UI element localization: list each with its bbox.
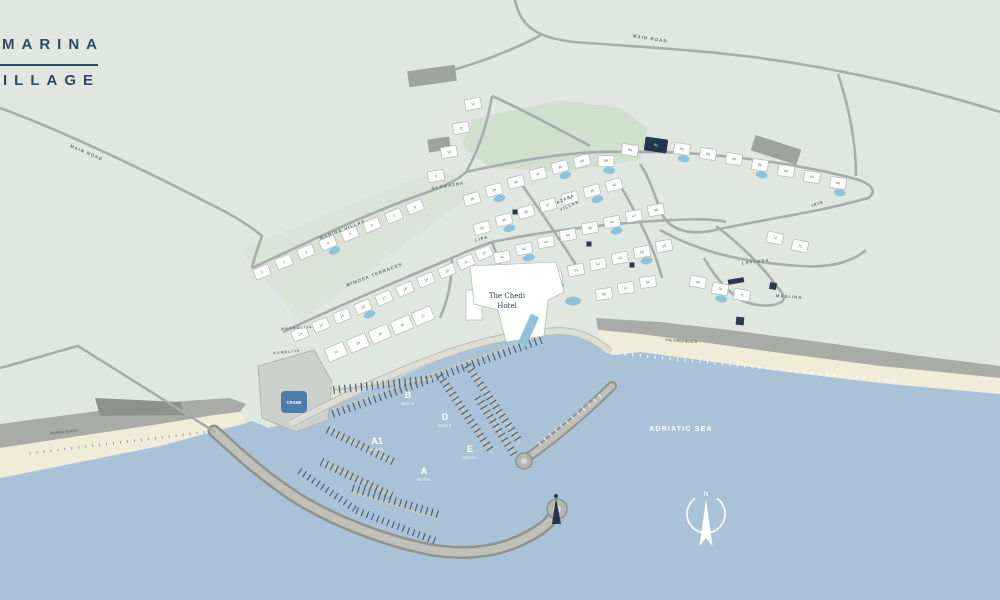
villa-53: 53 (611, 251, 629, 265)
villa-45: 45 (581, 221, 599, 235)
svg-text:58: 58 (646, 280, 650, 285)
svg-text:B: B (405, 390, 412, 400)
svg-text:67: 67 (810, 175, 814, 180)
crane-label: CRANE (287, 400, 302, 405)
svg-text:BERTH: BERTH (401, 402, 414, 406)
villa-66: 66 (777, 164, 794, 177)
svg-text:BERTH: BERTH (463, 456, 476, 460)
svg-text:A: A (421, 466, 428, 476)
villa-9: 9 (427, 169, 445, 183)
villa-71: 71 (733, 288, 751, 302)
svg-text:56: 56 (602, 292, 606, 297)
villa-10: 10 (440, 145, 458, 159)
crane-badge: CRANE (281, 391, 307, 413)
villa-44: 44 (559, 228, 577, 242)
svg-text:64: 64 (732, 157, 736, 162)
hotel-pool (565, 297, 581, 306)
villa-63: 63 (699, 147, 716, 160)
svg-text:61: 61 (654, 143, 658, 148)
villa-12: 12 (464, 97, 482, 111)
villa-11: 11 (452, 121, 470, 135)
label-adriatic-sea: ADRIATIC SEA (649, 426, 713, 433)
svg-text:57: 57 (624, 286, 628, 291)
villa-52: 52 (589, 257, 607, 271)
villa-41: 41 (493, 250, 511, 264)
berth-label-A1: A1BERTH (370, 436, 383, 452)
svg-text:62: 62 (680, 147, 684, 152)
villa-47: 47 (625, 209, 643, 223)
svg-text:D: D (442, 412, 449, 422)
svg-text:BERTH: BERTH (438, 424, 451, 428)
svg-text:68: 68 (836, 181, 840, 186)
compass-north-label: N (703, 491, 708, 498)
svg-text:E: E (467, 444, 473, 454)
logo-line1: MARINA (2, 36, 104, 53)
logo-line2: VILLAGE (0, 72, 100, 89)
hotel-label-line2: Hotel (497, 302, 517, 310)
villa-51: 51 (567, 263, 585, 277)
svg-text:65: 65 (758, 163, 762, 168)
svg-text:A1: A1 (371, 436, 383, 446)
svg-text:60: 60 (628, 148, 632, 153)
svg-text:59: 59 (604, 159, 608, 163)
marina-village-map-page: MARINA VILLAGE (0, 0, 1000, 600)
villa-55: 55 (655, 239, 673, 253)
logo-divider (0, 64, 98, 66)
villa-56: 56 (595, 287, 612, 300)
villa-69: 69 (689, 275, 707, 289)
hotel-label-line1: The Chedi (489, 292, 526, 300)
villa-43: 43 (537, 235, 555, 249)
site-plan-map[interactable]: 1234567891011121314151617181920212223242… (0, 0, 1000, 600)
villa-60: 60 (621, 143, 638, 156)
villa-58: 58 (639, 275, 656, 288)
villa-57: 57 (617, 281, 634, 294)
svg-text:63: 63 (706, 152, 710, 157)
villa-61: 61 (644, 137, 668, 153)
svg-text:BERTH: BERTH (417, 478, 430, 482)
villa-48: 48 (647, 203, 665, 217)
svg-text:BERTH: BERTH (370, 448, 383, 452)
svg-text:66: 66 (784, 169, 788, 174)
villa-67: 67 (803, 170, 820, 183)
villa-64: 64 (725, 152, 742, 165)
